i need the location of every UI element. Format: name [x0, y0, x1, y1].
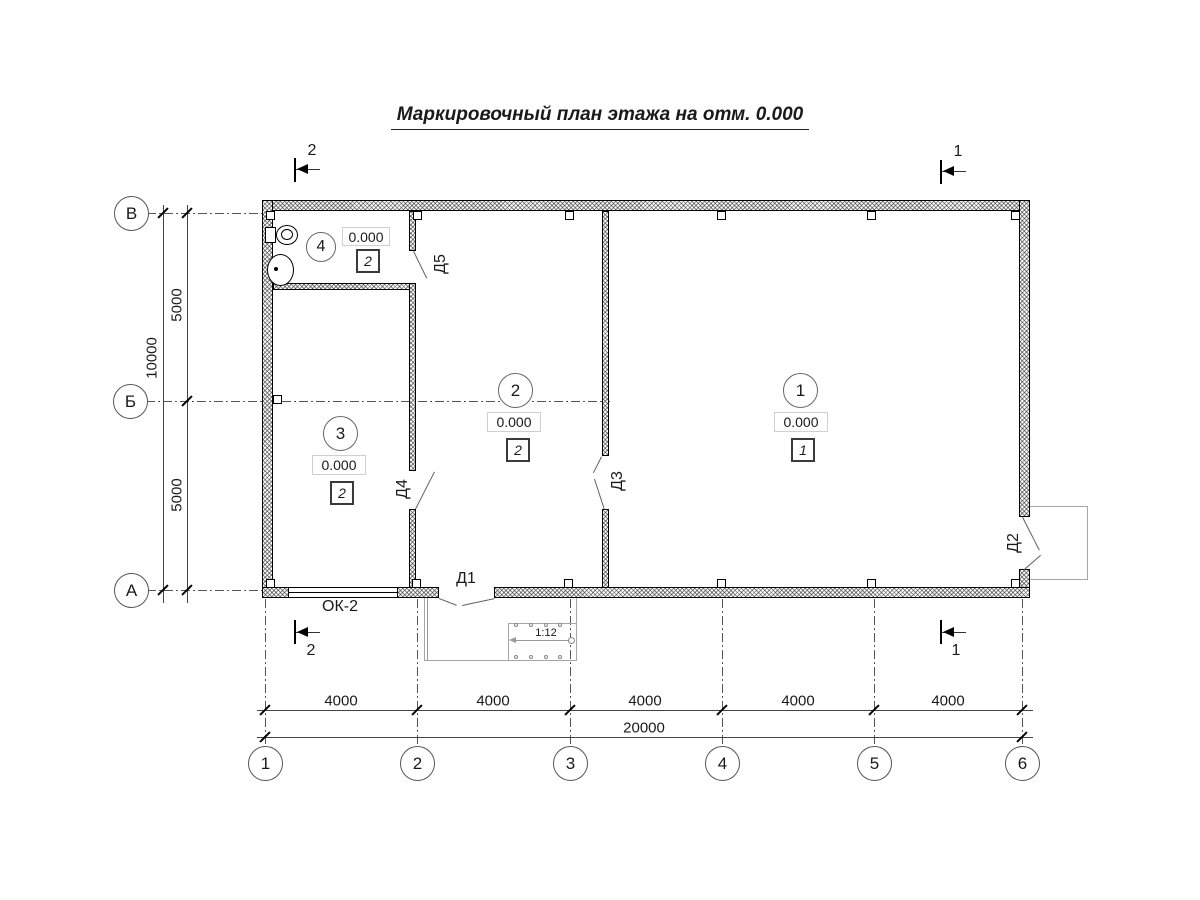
room-2-type-text: 2	[514, 442, 522, 458]
room-2-number-text: 2	[511, 381, 520, 401]
axis-col-1-label: 1	[261, 754, 270, 774]
section-arrow-icon	[297, 627, 308, 637]
toilet-tank	[265, 227, 276, 243]
interior-wall-wc	[273, 283, 410, 290]
room-1-type-text: 1	[799, 442, 807, 458]
axis-line-row-v	[147, 213, 263, 214]
axis-bubble-col-3: 3	[553, 746, 588, 781]
exterior-wall-bottom-a	[262, 587, 289, 598]
section-arrow-icon	[297, 164, 308, 174]
section-label-1-top: 1	[954, 143, 963, 161]
door-leaf-d5	[413, 251, 427, 278]
axis-line-col-1	[265, 599, 266, 747]
interior-wall-1-low	[409, 509, 416, 588]
section-label-2-top: 2	[308, 142, 317, 160]
dim-left-overall-label: 10000	[144, 337, 161, 379]
room-2-elevation-text: 0.000	[496, 414, 531, 430]
section-mark-bar	[294, 158, 296, 182]
room-3-elevation-text: 0.000	[321, 457, 356, 473]
axis-col-5-label: 5	[870, 754, 879, 774]
railing-post	[558, 655, 562, 659]
axis-line-row-b	[146, 401, 610, 402]
exterior-wall-top	[262, 200, 1030, 211]
room-4-number: 4	[306, 232, 336, 262]
room-1-elevation-text: 0.000	[783, 414, 818, 430]
porch-side-line	[427, 598, 428, 661]
side-landing-outline	[1030, 506, 1088, 580]
railing-post	[514, 655, 518, 659]
door-label-d1: Д1	[456, 570, 476, 588]
interior-wall-1-mid	[409, 283, 416, 471]
door-label-d5: Д5	[432, 254, 450, 274]
floor-plan-drawing: Маркировочный план этажа на отм. 0.000 1…	[0, 0, 1200, 900]
section-label-2-bottom: 2	[307, 642, 316, 660]
room-3-type: 2	[330, 481, 354, 505]
axis-line-col-4	[722, 599, 723, 747]
room-2-number: 2	[498, 373, 533, 408]
dim-bottom-seg1-label: 4000	[324, 693, 357, 710]
axis-col-6-label: 6	[1018, 754, 1027, 774]
door-leaf-d3-b	[594, 479, 605, 510]
axis-col-2-label: 2	[413, 754, 422, 774]
dim-bottom-seg5-label: 4000	[931, 693, 964, 710]
ramp-arrow-origin	[568, 637, 575, 644]
room-2-type: 2	[506, 438, 530, 462]
ramp-slope-label: 1:12	[533, 627, 558, 639]
room-4-elevation-text: 0.000	[348, 229, 383, 245]
room-3-number: 3	[323, 416, 358, 451]
sink-bowl	[267, 254, 294, 286]
toilet-bowl-inner	[281, 229, 293, 240]
room-3-elevation: 0.000	[312, 455, 366, 475]
column-notch	[266, 579, 275, 588]
room-1-number: 1	[783, 373, 818, 408]
room-4-type: 2	[356, 249, 380, 273]
dim-line-bottom-segments	[257, 710, 1033, 711]
column-notch	[1011, 211, 1020, 220]
axis-row-v-label: В	[126, 204, 137, 224]
ramp-arrow-icon	[509, 637, 516, 643]
axis-bubble-row-b: Б	[113, 384, 148, 419]
section-arrow-icon	[943, 627, 954, 637]
window-ok2	[289, 587, 397, 598]
axis-line-col-6	[1022, 599, 1023, 747]
room-1-number-text: 1	[796, 381, 805, 401]
door-leaf-d4	[415, 472, 435, 510]
exterior-wall-bottom-c	[494, 587, 1030, 598]
room-4-elevation: 0.000	[342, 227, 390, 246]
axis-line-col-2	[417, 599, 418, 747]
column-notch	[1011, 579, 1020, 588]
axis-col-3-label: 3	[566, 754, 575, 774]
column-notch	[717, 579, 726, 588]
interior-wall-2-upper	[602, 211, 609, 456]
axis-bubble-col-1: 1	[248, 746, 283, 781]
dim-bottom-seg4-label: 4000	[781, 693, 814, 710]
column-notch	[273, 395, 282, 404]
axis-row-a-label: А	[126, 581, 137, 601]
dim-bottom-seg2-label: 4000	[476, 693, 509, 710]
axis-line-col-5	[874, 599, 875, 747]
dim-line-left-overall	[163, 205, 164, 603]
column-notch	[266, 211, 275, 220]
section-arrow-icon	[943, 166, 954, 176]
dim-line-bottom-overall	[257, 737, 1033, 738]
drawing-title: Маркировочный план этажа на отм. 0.000	[391, 104, 810, 130]
railing-post	[544, 655, 548, 659]
dim-left-seg2-label: 5000	[169, 478, 186, 511]
exterior-wall-right-upper	[1019, 200, 1030, 517]
dim-bottom-overall-label: 20000	[623, 720, 665, 737]
column-notch	[565, 211, 574, 220]
door-label-d4: Д4	[394, 479, 412, 499]
ramp-direction-line	[513, 640, 571, 641]
railing-post	[529, 655, 533, 659]
dim-bottom-seg3-label: 4000	[628, 693, 661, 710]
room-4-type-text: 2	[364, 253, 372, 269]
column-notch	[564, 579, 573, 588]
axis-line-row-a	[147, 590, 263, 591]
axis-row-b-label: Б	[125, 392, 136, 412]
door-label-d3: Д3	[609, 471, 627, 491]
axis-col-4-label: 4	[718, 754, 727, 774]
door-label-d2: Д2	[1005, 533, 1023, 553]
column-notch	[867, 579, 876, 588]
door-leaf-d3-a	[593, 457, 602, 473]
room-3-type-text: 2	[338, 485, 346, 501]
column-notch	[867, 211, 876, 220]
dim-line-left-segments	[187, 205, 188, 603]
axis-bubble-col-6: 6	[1005, 746, 1040, 781]
exterior-wall-bottom-b	[397, 587, 439, 598]
room-1-type: 1	[791, 438, 815, 462]
sink-drain	[274, 267, 278, 271]
room-1-elevation: 0.000	[774, 412, 828, 432]
axis-bubble-col-4: 4	[705, 746, 740, 781]
room-2-elevation: 0.000	[487, 412, 541, 432]
drawing-title-wrap: Маркировочный план этажа на отм. 0.000	[0, 104, 1200, 130]
window-label-ok2: ОК-2	[322, 598, 358, 616]
dim-left-seg1-label: 5000	[169, 288, 186, 321]
section-label-1-bottom: 1	[952, 642, 961, 660]
axis-bubble-row-a: А	[114, 573, 149, 608]
railing-post	[514, 623, 518, 627]
room-4-number-text: 4	[317, 238, 326, 256]
axis-bubble-col-2: 2	[400, 746, 435, 781]
interior-wall-2-lower	[602, 509, 609, 588]
column-notch	[412, 579, 421, 588]
room-3-number-text: 3	[336, 424, 345, 444]
axis-bubble-col-5: 5	[857, 746, 892, 781]
section-mark-bar	[940, 160, 942, 184]
column-notch	[717, 211, 726, 220]
axis-bubble-row-v: В	[114, 196, 149, 231]
column-notch	[413, 211, 422, 220]
